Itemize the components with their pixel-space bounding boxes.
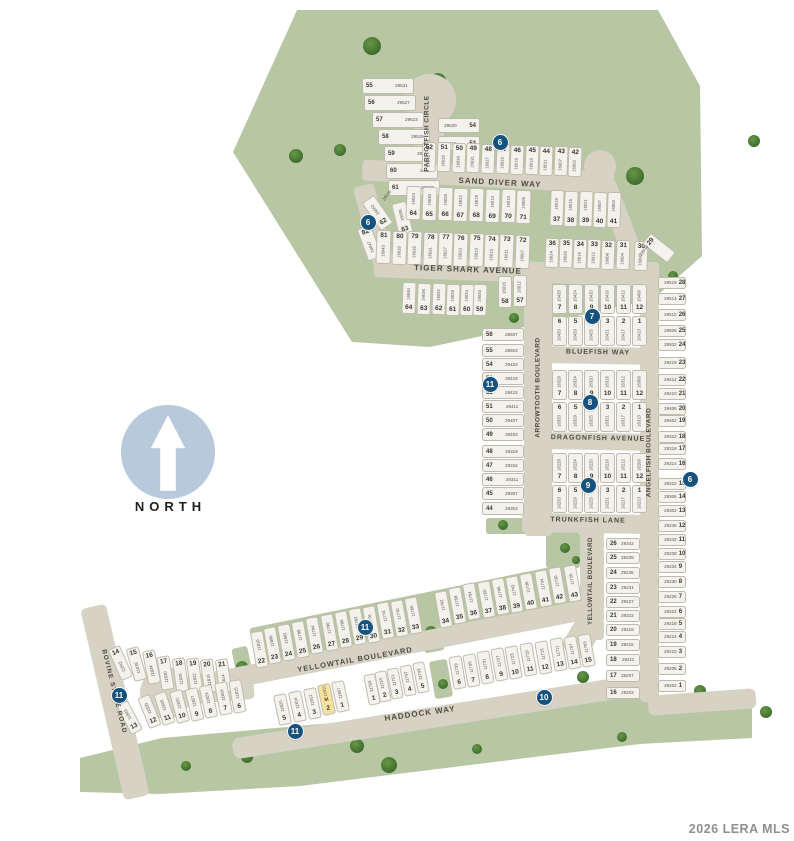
lot: 816224 (568, 453, 583, 483)
lot-number: 33 (588, 241, 600, 248)
lot-number: 24 (283, 651, 295, 659)
lot: 2941021 (658, 388, 686, 400)
lot-number: 13 (128, 722, 141, 733)
lot-address: 16011 (584, 199, 589, 211)
lot-number: 40 (593, 219, 605, 226)
lot-number: 46 (486, 477, 493, 483)
lot: 716328 (552, 370, 567, 400)
lot-address: 11835 (160, 699, 168, 711)
lot-address: 11711 (555, 645, 561, 657)
lot-number: 78 (424, 234, 437, 241)
lot-address: 16424 (573, 290, 577, 302)
lot-address: 11746 (497, 586, 503, 598)
lot-number: 9 (191, 711, 203, 720)
lot-address: 11815 (234, 687, 240, 699)
lot-address: 11719 (525, 650, 531, 662)
lot-number: 19 (187, 660, 199, 668)
lot-address: 16412 (621, 290, 625, 302)
lot-address: 16035 (412, 247, 417, 259)
lot-address: 11755 (379, 677, 385, 689)
lot-address: 16325 (589, 415, 593, 427)
lot: 5016035 (451, 143, 466, 173)
lot-address: 11794 (311, 625, 317, 637)
lot-address: 11798 (297, 629, 303, 641)
lot-address: 11826 (178, 674, 184, 686)
lot-number: 7 (467, 677, 479, 685)
lot: 292144 (658, 631, 686, 643)
lot-number: 24 (679, 342, 686, 348)
lot: 216317 (616, 402, 631, 432)
lot: 3916011 (578, 191, 593, 227)
lot-address: 29219 (621, 628, 634, 633)
lot-number: 48 (486, 449, 493, 455)
lot-number: 27 (326, 641, 338, 649)
lot: 5629527 (364, 95, 416, 111)
lot: 316321 (600, 402, 615, 432)
lot: 1116212 (616, 453, 631, 483)
lot: 7516019 (468, 233, 484, 268)
lot-number: 30 (368, 633, 380, 641)
lot-address: 16042 (370, 204, 380, 216)
lot-number: 4 (404, 686, 415, 694)
lot-number: 3 (601, 405, 614, 412)
tree-icon (626, 167, 644, 185)
lot-number: 44 (540, 148, 552, 155)
lot-address: 16004 (621, 253, 626, 265)
lot-address: 29211 (622, 658, 634, 663)
lot-number: 22 (256, 658, 268, 666)
tree-icon (748, 135, 760, 147)
lot-number: 37 (550, 217, 562, 224)
lot-address: 16015 (569, 199, 574, 211)
lot-address: 29506 (664, 329, 677, 334)
lot-number: 43 (555, 148, 567, 155)
lot-address: 11838 (134, 662, 141, 674)
lot: 2931817 (658, 443, 686, 455)
lot-address: 11831 (175, 697, 182, 709)
lot-number: 56 (486, 332, 493, 338)
lot: 6116028 (445, 284, 460, 316)
lot: 4316007 (553, 146, 568, 176)
lot-address: 11735 (468, 661, 474, 673)
lot: 2629243 (606, 538, 640, 550)
lot-address: 29203 (621, 691, 634, 696)
lot-number: 44 (486, 506, 493, 512)
lot-address: 16321 (605, 415, 609, 427)
lot-number: 5 (569, 405, 582, 412)
tree-icon (334, 144, 346, 156)
lot: 2941422 (658, 374, 686, 386)
lot: 2029219 (606, 624, 640, 636)
lot: 4429303 (482, 502, 524, 515)
lot: 316421 (600, 316, 615, 346)
lot-number: 12 (633, 391, 646, 398)
lot: 6416040 (401, 282, 416, 314)
lot-address: 11830 (163, 671, 169, 683)
lot-number: 39 (511, 603, 523, 611)
lot-address: 16016 (503, 283, 507, 295)
lot-number: 57 (514, 298, 526, 305)
lot-number: 7 (553, 474, 566, 481)
lot-number: 64 (403, 305, 415, 312)
lot: 7016010 (500, 189, 516, 224)
tree-icon (438, 679, 448, 689)
lot-number: 21 (610, 613, 617, 619)
lot-address: 16020 (564, 251, 569, 263)
lot-number: 71 (516, 215, 529, 222)
lot-number: 3 (601, 488, 614, 495)
lot: 3716019 (549, 190, 564, 226)
tree-icon (560, 543, 570, 553)
lot-address: 11758 (454, 595, 460, 607)
lot-number: 38 (497, 605, 509, 613)
lot-number: 18 (173, 660, 185, 668)
lot-address: 16216 (605, 459, 609, 471)
lot-address: 16019 (515, 158, 520, 170)
lot: 6316036 (416, 283, 431, 315)
lot-number: 9 (495, 671, 507, 679)
lot-address: 16229 (573, 497, 577, 509)
lot-address: 11747 (404, 671, 410, 683)
lot-number: 15 (127, 649, 139, 658)
lot-address: 11734 (540, 578, 546, 590)
tree-icon (509, 313, 519, 323)
lot: 7216007 (514, 235, 530, 270)
lot: 2941823 (658, 357, 686, 369)
lot-address: 11727 (496, 655, 502, 667)
lot-number: 5 (417, 683, 428, 691)
phase-marker: 6 (493, 135, 508, 150)
north-arrow-glyph (142, 412, 194, 494)
lot: 4816027 (480, 144, 495, 174)
lot-address: 16003 (612, 200, 617, 212)
lot: 2930614 (658, 491, 686, 503)
lot-address: 16233 (557, 497, 561, 509)
lot-number: 13 (554, 661, 566, 669)
lot: 4516015 (524, 145, 539, 175)
lot-address: 16023 (501, 157, 506, 169)
lot: 5629507 (482, 328, 524, 341)
lot-number: 6 (553, 488, 566, 495)
lot-number: 5 (569, 488, 582, 495)
lot-address: 16433 (557, 329, 561, 341)
lot-address: 29215 (621, 643, 634, 648)
lot-number: 41 (540, 597, 552, 605)
lot-address: 16014 (490, 196, 495, 208)
lot-address: 16213 (637, 497, 641, 509)
lot-number: 19 (679, 418, 686, 424)
lot-address: 11839 (144, 702, 152, 714)
lot-number: 21 (216, 661, 228, 669)
lot: 216217 (616, 485, 631, 513)
lot-number: 19 (610, 642, 617, 648)
lot: 816324 (568, 370, 583, 400)
lot-address: 29411 (506, 404, 518, 409)
lot-number: 48 (482, 146, 494, 153)
lot-address: 29319 (505, 449, 518, 454)
lot-number: 10 (679, 551, 686, 557)
lot: 2930213 (658, 505, 686, 517)
lot-number: 18 (610, 657, 617, 663)
lot: 316221 (600, 485, 615, 513)
lot: 2931416 (658, 458, 686, 470)
lot: 2229227 (606, 596, 640, 608)
lot: 616433 (552, 316, 567, 346)
lot: 6716022 (452, 188, 468, 223)
lot-address: 11754 (468, 591, 474, 603)
lot-number: 8 (569, 391, 582, 398)
lot-address: 29414 (664, 378, 677, 383)
lot-number: 43 (569, 592, 581, 600)
lot: 1929215 (606, 639, 640, 651)
lot-number: 9 (679, 564, 682, 570)
lot-number: 2 (617, 488, 630, 495)
tree-icon (760, 706, 772, 718)
lot-number: 81 (377, 232, 390, 239)
lot: 1016416 (600, 284, 615, 314)
lot-address: 16024 (550, 251, 555, 263)
lot-number: 11 (162, 714, 174, 724)
lot-address: 29423 (505, 362, 518, 367)
lot: 2924211 (658, 534, 686, 546)
lot-address: 11790 (326, 622, 332, 634)
lot-address: 16016 (578, 252, 583, 264)
lot-number: 32 (602, 242, 614, 249)
lot-address: 16011 (544, 159, 549, 171)
phase-marker: 8 (583, 395, 598, 410)
lot-address: 16317 (621, 415, 625, 427)
lot-number: 23 (269, 654, 281, 662)
lot-address: 16416 (605, 290, 609, 302)
lot-address: 16421 (605, 329, 609, 341)
lot: 1016216 (600, 453, 615, 483)
lot: 5429423 (482, 358, 524, 371)
lot-number: 12 (539, 664, 551, 672)
lot-number: 54 (469, 123, 476, 129)
lot-address: 16428 (557, 290, 561, 302)
lot-address: 16023 (458, 249, 463, 261)
lot-address: 16212 (621, 459, 625, 471)
lot-number: 50 (486, 418, 493, 424)
lot-address: 29510 (664, 313, 677, 318)
lot-number: 28 (340, 638, 352, 646)
lot-address: 11786 (340, 619, 346, 631)
lot: 1829211 (606, 654, 640, 666)
lot: 3516020 (558, 238, 573, 268)
lot: 5029407 (482, 414, 524, 427)
lot: 8116043 (375, 230, 391, 265)
lot-number: 67 (453, 213, 466, 220)
lot: 516229 (568, 485, 583, 513)
lot-address: 29218 (664, 622, 677, 627)
lot-number: 22 (679, 377, 686, 383)
lot-address: 11738 (525, 581, 531, 593)
lot-number: 45 (526, 147, 538, 154)
lot-address: 16019 (555, 198, 560, 210)
lot-address: 16221 (605, 497, 609, 509)
phase-marker: 6 (361, 215, 376, 230)
lot: 4216003 (567, 147, 582, 177)
lot: 716228 (552, 453, 567, 483)
lot-number: 7 (553, 391, 566, 398)
lot-number: 58 (382, 134, 389, 140)
lot: 4529307 (482, 487, 524, 500)
lot-number: 62 (433, 306, 445, 313)
lot-number: 35 (560, 240, 572, 247)
lot-number: 32 (396, 627, 408, 635)
lot: 292062 (658, 663, 686, 675)
lot-number: 2 (617, 319, 630, 326)
lot: 2129223 (606, 610, 640, 622)
lot-address: 11707 (569, 643, 575, 655)
lot-number: 60 (390, 168, 397, 174)
lot-address: 16043 (381, 246, 386, 258)
lot-number: 36 (468, 610, 480, 618)
lot-number: 1 (633, 405, 646, 412)
lot: 516429 (568, 316, 583, 346)
lot-address: 11843 (123, 708, 132, 720)
lot-number: 24 (610, 570, 617, 576)
lot-address: 16333 (557, 415, 561, 427)
lot-number: 75 (470, 235, 483, 242)
lot-address: 29235 (621, 571, 634, 576)
lot: 3816015 (563, 191, 578, 227)
lot-address: 29226 (664, 595, 677, 600)
lot-address: 16027 (443, 248, 448, 260)
lot-address: 11770 (396, 608, 402, 620)
lot: 5529531 (362, 78, 414, 94)
lot: 6416034 (405, 186, 421, 221)
lot: 2329231 (606, 582, 640, 594)
lot-address: 16316 (605, 376, 609, 388)
phase-marker: 6 (683, 472, 698, 487)
north-arrow-icon (121, 405, 215, 499)
lot-address: 16007 (559, 159, 564, 171)
lot-number: 35 (454, 614, 466, 622)
lot: 7916035 (406, 231, 422, 266)
lot: 816424 (568, 284, 583, 314)
lot-address: 16020 (478, 290, 483, 302)
lot-address: 16408 (637, 290, 641, 302)
lot-number: 69 (485, 214, 498, 221)
lot-number: 72 (516, 237, 529, 244)
lot-address: 29306 (664, 495, 677, 500)
lot-number: 6 (553, 405, 566, 412)
lot: 2923810 (658, 548, 686, 560)
lot-number: 4 (293, 712, 305, 721)
lot-number: 31 (617, 242, 629, 249)
tree-icon (617, 732, 627, 742)
lot: 4829319 (482, 445, 524, 458)
lot-number: 1 (633, 488, 646, 495)
lot-address: 16208 (637, 459, 641, 471)
lot: 4729315 (482, 459, 524, 472)
lot-number: 11 (617, 305, 630, 312)
lot-address: 16039 (397, 247, 402, 259)
lot-address: 29202 (664, 684, 677, 689)
lot: 2529239 (606, 552, 640, 564)
lot-address: 16035 (457, 156, 462, 168)
lot-address: 16040 (407, 288, 412, 300)
lot-number: 42 (554, 594, 566, 602)
lot-address: 11730 (554, 575, 560, 587)
lot-number: 58 (499, 299, 511, 306)
lot-address: 16011 (504, 250, 509, 262)
lot-number: 5 (278, 715, 290, 724)
lot-address: 16328 (557, 376, 561, 388)
tree-icon (472, 744, 482, 754)
lot: 1016316 (600, 370, 615, 400)
lot-address: 29238 (664, 552, 677, 557)
lot-address: 29230 (664, 580, 677, 585)
lot-number: 77 (439, 234, 452, 241)
lot-address: 11766 (410, 605, 416, 617)
lot-number: 51 (486, 404, 493, 410)
phase-marker: 7 (585, 309, 600, 324)
lot-address: 16034 (411, 193, 416, 205)
lot-address: 16010 (506, 196, 511, 208)
lot: 4116003 (606, 192, 621, 228)
lot-address: 29223 (621, 614, 634, 619)
lot-address: 16047 (367, 241, 375, 253)
lot-number: 64 (406, 211, 419, 218)
lot-number: 2 (379, 692, 390, 700)
lot-address: 16031 (428, 248, 433, 260)
lot-address: 29310 (664, 482, 677, 487)
lot-number: 20 (679, 406, 686, 412)
lot: 3316012 (586, 239, 601, 269)
lot-number: 10 (601, 391, 614, 398)
lot-address: 16032 (437, 289, 442, 301)
lot-address: 16224 (573, 459, 577, 471)
lot-address: 16220 (589, 459, 593, 471)
lot: 2951427 (658, 293, 686, 305)
lot-number: 11 (679, 537, 685, 543)
phase-marker: 11 (483, 377, 498, 392)
lot-address: 29406 (664, 407, 677, 412)
lot-address: 11742 (511, 584, 517, 596)
lot-number: 2 (679, 666, 682, 672)
lot: 516329 (568, 402, 583, 432)
lot: 4416011 (538, 146, 553, 176)
lot-number: 51 (438, 144, 450, 151)
lot-number: 33 (410, 624, 422, 632)
lot: 4629311 (482, 473, 524, 486)
lot: 1116312 (616, 370, 631, 400)
lot-number: 39 (579, 218, 591, 225)
lot-number: 27 (679, 296, 686, 302)
lot: 8016039 (391, 231, 407, 266)
lot-address: 16413 (637, 329, 641, 341)
lot-number: 3 (679, 649, 682, 655)
lot-address: 11823 (204, 692, 210, 704)
lot-number: 12 (147, 716, 160, 726)
lot-address: 29518 (664, 281, 677, 286)
lot-number: 6 (553, 319, 566, 326)
lot-number: 70 (501, 214, 514, 221)
lot-address: 29314 (664, 462, 677, 467)
lot: 2952054 (438, 118, 480, 133)
lot-address: 29507 (505, 332, 518, 337)
lot-number: 8 (569, 474, 582, 481)
lot-address: 16038 (398, 209, 405, 221)
lot-address: 29302 (664, 509, 677, 514)
lot-address: 16007 (598, 200, 603, 212)
lot: 6216032 (431, 283, 446, 315)
lot-address: 16031 (471, 156, 476, 168)
lot-address: 16417 (621, 329, 625, 341)
lot-address: 29206 (664, 667, 677, 672)
